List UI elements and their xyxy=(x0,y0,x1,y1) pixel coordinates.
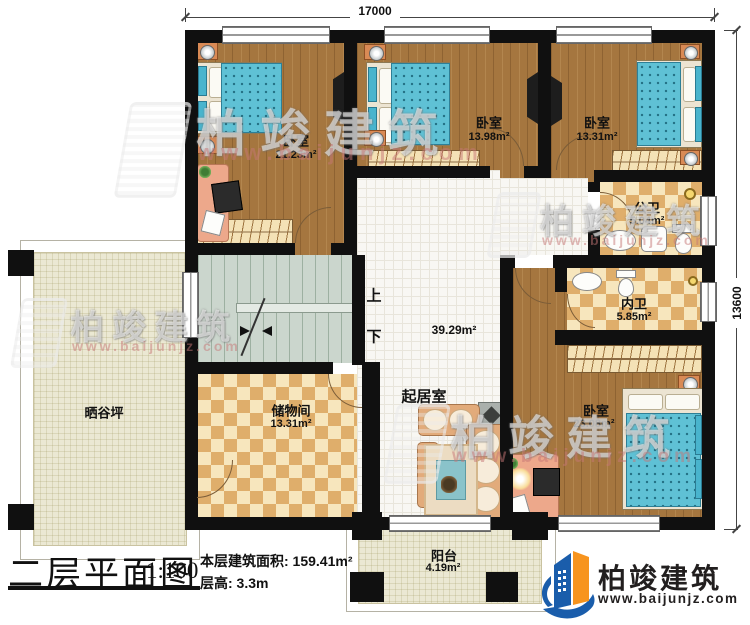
window xyxy=(556,26,652,44)
plant xyxy=(199,166,211,178)
window xyxy=(182,272,199,338)
room-area-bedroom-top-middle: 13.98m² xyxy=(469,131,510,143)
room-label-drying-yard: 晒谷坪 xyxy=(84,403,123,422)
room-label-bedroom-top-middle: 卧室 xyxy=(476,113,502,132)
bed xyxy=(636,60,702,148)
stairs-down-label: 下 xyxy=(366,326,381,347)
nightstand xyxy=(680,44,700,59)
brand-logo: 柏竣建筑 www.baijunjz.com xyxy=(538,543,748,621)
window xyxy=(384,26,490,44)
nightstand xyxy=(364,44,386,60)
nightstand xyxy=(680,150,700,165)
room-label-ensuite-bathroom: 内卫 xyxy=(621,294,647,313)
room-area-bedroom-top-right: 13.31m² xyxy=(577,131,618,143)
room-label-bedroom-top-left: 卧室 xyxy=(283,131,309,150)
toilet xyxy=(672,224,694,233)
nightstand xyxy=(364,130,386,146)
computer-monitor xyxy=(211,180,243,214)
plan-scale: 1:100 xyxy=(146,558,198,584)
brand-website: www.baijunjz.com xyxy=(598,591,739,606)
room-area-balcony: 4.19m² xyxy=(426,562,461,574)
floor-plan: 卧室 21.23m² 卧室 13.98m² 卧室 13.31m² 公卫 5.04… xyxy=(0,0,750,625)
bed xyxy=(622,388,704,510)
window xyxy=(700,282,717,322)
room-label-living-room: 起居室 xyxy=(401,386,446,407)
room-area-public-bathroom: 5.04m² xyxy=(630,215,665,227)
room-label-bedroom-bottom-right: 卧室 xyxy=(583,401,609,420)
floor-area-text: 本层建筑面积: 159.41m² xyxy=(200,551,352,571)
computer-monitor xyxy=(533,468,560,496)
room-area-living-room: 39.29m² xyxy=(432,323,477,337)
room-area-bedroom-top-left: 21.23m² xyxy=(276,149,317,161)
stairs-up-label: 上 xyxy=(366,285,381,306)
balcony-door-window xyxy=(389,515,491,532)
shower-tray xyxy=(641,226,667,252)
window xyxy=(700,196,717,246)
bed xyxy=(196,62,282,134)
drying-yard-floor xyxy=(33,252,187,546)
title-underline xyxy=(8,586,200,590)
pendant-lamp-icon xyxy=(684,188,696,200)
window xyxy=(558,515,660,532)
floor-height-text: 层高: 3.3m xyxy=(200,573,268,593)
pendant-lamp-icon xyxy=(688,276,698,286)
room-area-storage-room: 13.31m² xyxy=(271,418,312,430)
toilet-bowl xyxy=(675,233,692,254)
stairs-arrow-left xyxy=(262,326,272,336)
stairs-arrow-right xyxy=(240,326,250,336)
watermark-logo-icon xyxy=(114,102,193,198)
toilet xyxy=(616,270,636,278)
tv-icon xyxy=(551,76,562,126)
hallway-floor xyxy=(500,178,588,255)
dimension-top-value: 17000 xyxy=(350,4,400,18)
room-label-public-bathroom: 公卫 xyxy=(634,198,660,217)
room-label-storage-room: 储物间 xyxy=(271,401,310,420)
window xyxy=(222,26,330,44)
tv-icon xyxy=(333,72,344,124)
sink xyxy=(604,230,636,251)
rug xyxy=(424,444,478,516)
room-area-bedroom-bottom-right: 23.08m² xyxy=(574,418,615,430)
stairs-handrail xyxy=(236,303,354,313)
brand-logo-icon xyxy=(538,543,598,624)
room-area-ensuite-bathroom: 5.85m² xyxy=(617,311,652,323)
dimension-right-value: 13600 xyxy=(730,278,744,328)
tv-icon xyxy=(527,72,538,124)
room-label-bedroom-top-right: 卧室 xyxy=(584,113,610,132)
sink xyxy=(572,272,602,291)
closet xyxy=(567,345,702,373)
